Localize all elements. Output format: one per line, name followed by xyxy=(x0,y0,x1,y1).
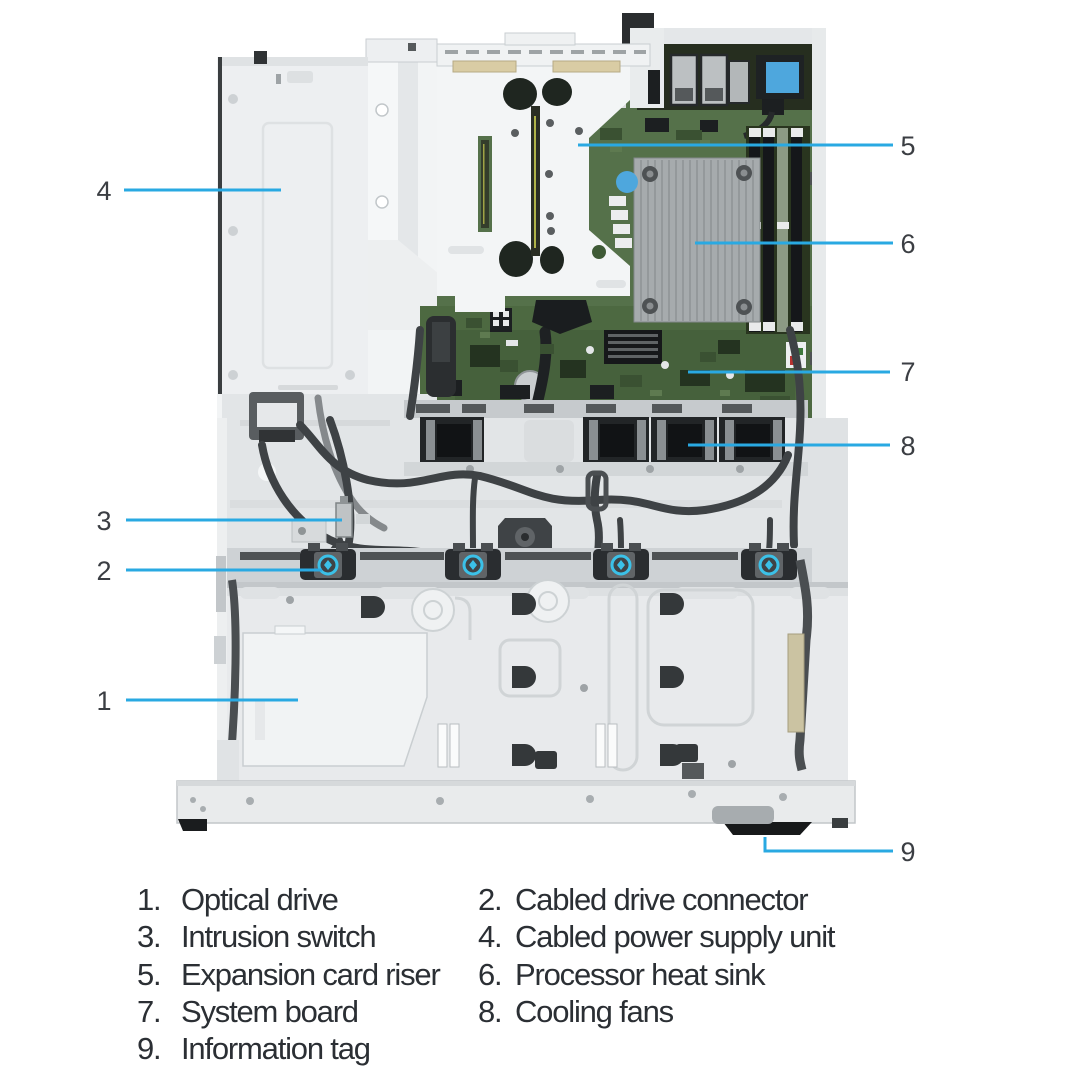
svg-text:7: 7 xyxy=(900,357,915,387)
svg-text:Cabled drive connector: Cabled drive connector xyxy=(515,882,808,917)
svg-text:2: 2 xyxy=(96,556,111,586)
svg-text:6: 6 xyxy=(900,229,915,259)
svg-text:4.: 4. xyxy=(478,919,501,954)
svg-text:Processor heat sink: Processor heat sink xyxy=(515,957,766,992)
svg-text:3: 3 xyxy=(96,506,111,536)
svg-text:8.: 8. xyxy=(478,994,501,1029)
svg-text:System board: System board xyxy=(181,994,358,1029)
svg-text:Cooling fans: Cooling fans xyxy=(515,994,674,1029)
svg-text:Cabled power supply unit: Cabled power supply unit xyxy=(515,919,836,954)
svg-text:2.: 2. xyxy=(478,882,501,917)
svg-text:Expansion card riser: Expansion card riser xyxy=(181,957,440,992)
svg-text:5: 5 xyxy=(900,131,915,161)
svg-text:4: 4 xyxy=(96,176,111,206)
svg-text:3.: 3. xyxy=(137,919,160,954)
svg-text:9.: 9. xyxy=(137,1031,160,1066)
svg-text:Intrusion switch: Intrusion switch xyxy=(181,919,375,954)
svg-text:8: 8 xyxy=(900,431,915,461)
svg-text:Information tag: Information tag xyxy=(181,1031,370,1066)
svg-text:1: 1 xyxy=(96,686,111,716)
svg-text:7.: 7. xyxy=(137,994,160,1029)
svg-text:9: 9 xyxy=(900,837,915,867)
svg-text:1.: 1. xyxy=(137,882,160,917)
svg-text:5.: 5. xyxy=(137,957,160,992)
svg-text:6.: 6. xyxy=(478,957,501,992)
svg-text:Optical drive: Optical drive xyxy=(181,882,338,917)
